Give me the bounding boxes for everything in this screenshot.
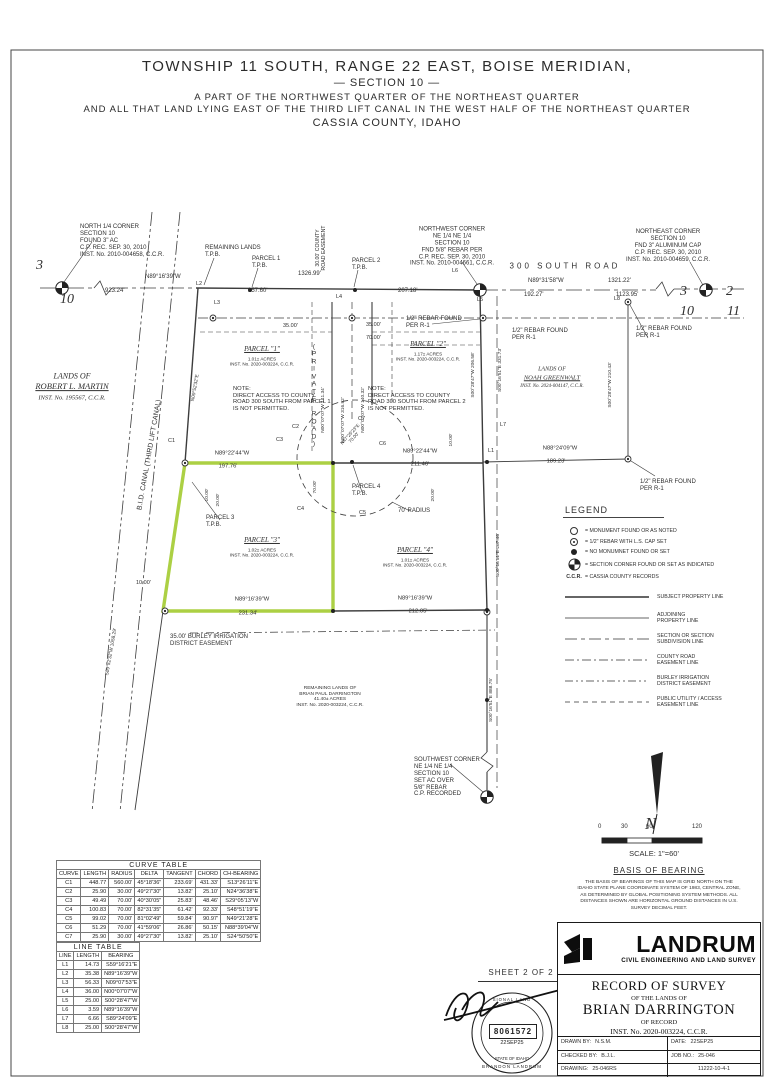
- line-label: L6: [452, 268, 458, 274]
- table-row: C651.2970.00'41°59'06"26.86'50.15'N88°39…: [57, 924, 261, 933]
- legend-line-text: PUBLIC UTILITY / ACCESS EASEMENT LINE: [657, 696, 722, 708]
- county-line-sample-icon: [563, 651, 651, 669]
- table-cell: S89°24'09"E: [102, 1015, 140, 1024]
- legend-symbol-item: = SECTION CORNER FOUND OR SET AS INDICAT…: [563, 558, 763, 571]
- rebar-note: 1/2" REBAR FOUND PER R-1: [640, 479, 696, 493]
- table-row: C349.4970.00'40°30'05"25.83'48.46'S29°05…: [57, 897, 261, 906]
- table-cell: L8: [57, 1024, 74, 1033]
- table-cell: S29°05'13"W: [221, 897, 261, 906]
- table-cell: 431.33': [195, 879, 221, 888]
- column-header: CHORD: [195, 870, 221, 879]
- section-number: 3: [36, 258, 43, 274]
- table-cell: 13.82': [164, 933, 195, 942]
- curve-label: C4: [297, 506, 304, 512]
- distance-label: 1321.22': [608, 278, 631, 285]
- table-cell: S00°28'47"W: [102, 997, 140, 1006]
- legend-symbol-item: = NO MONUMNET FOUND OR SET: [563, 549, 763, 555]
- dim-label: 10.00': [136, 580, 151, 586]
- table-cell: N24°36'38"E: [221, 888, 261, 897]
- table-cell: 92.33': [195, 906, 221, 915]
- table-cell: L7: [57, 1015, 74, 1024]
- distance-label: 197.76': [219, 464, 238, 471]
- table-cell: 70.00': [109, 906, 135, 915]
- parcel-sub: 1.17± ACRES INST. No. 2020-003224, C.C.R…: [396, 352, 460, 363]
- table-row: C225.9030.00'49°27'30"13.82'25.10'N24°36…: [57, 888, 261, 897]
- instrument-number: INST. No. 2020-003224, C.C.R.: [558, 1027, 760, 1036]
- rebar-note: 1/2" REBAR FOUND PER R-1: [636, 326, 692, 340]
- line-label: L3: [214, 300, 220, 306]
- bearing-label: S00°16'51"E 888.75': [489, 678, 495, 722]
- title-description-2: AND ALL THAT LAND LYING EAST OF THE THIR…: [0, 104, 774, 115]
- bearing-label: S00°16'51"E 331.73': [498, 348, 504, 392]
- title-township: TOWNSHIP 11 SOUTH, RANGE 22 EAST, BOISE …: [0, 58, 774, 75]
- bearing-label: N89°31'58"W: [528, 278, 564, 285]
- parcel-sub: 1.01± ACRES INST. No. 2020-003224, C.C.R…: [230, 357, 294, 368]
- line-label: L4: [336, 294, 342, 300]
- legend-line-text: SUBJECT PROPERTY LINE: [657, 594, 723, 600]
- field-label: DATE:: [671, 1039, 686, 1045]
- table-cell: N00°07'07"W: [102, 988, 140, 997]
- adjoiner-inst: INST. No. 2024-004147, C.C.R.: [520, 384, 583, 390]
- field-checked-by: CHECKED BY:B.J.L.: [558, 1051, 668, 1065]
- dim-label: 70.00': [366, 335, 381, 341]
- adjoining-line-sample-icon: [563, 609, 651, 627]
- document-title: RECORD OF SURVEY: [558, 978, 760, 994]
- legend-symbol-item: = MONUMENT FOUND OR AS NOTED: [563, 527, 763, 535]
- tpb-label: PARCEL 4 T.P.B.: [352, 484, 380, 498]
- table-row: L825.00S00°28'47"W: [57, 1024, 140, 1033]
- scale-tick: 0: [598, 824, 601, 830]
- adjoiner-label: LANDS OF: [53, 371, 90, 380]
- scale-tick: 60: [646, 824, 653, 830]
- legend-line-text: ADJOINING PROPERTY LINE: [657, 612, 698, 624]
- corner-note: SOUTHWEST CORNER NE 1/4 NE 1/4 SECTION 1…: [414, 757, 480, 798]
- legend-symbol-text: = SECTION CORNER FOUND OR SET AS INDICAT…: [585, 562, 714, 568]
- legend-symbol-text: = 1/2" REBAR WITH L.S. CAP SET: [585, 539, 667, 545]
- bearing-label: N89°16'39"W: [235, 597, 269, 604]
- rebar-cap-icon: [563, 538, 585, 546]
- table-cell: L6: [57, 1006, 74, 1015]
- column-header: LENGTH: [74, 952, 102, 961]
- table-cell: 13.82': [164, 888, 195, 897]
- table-cell: 90.97': [195, 915, 221, 924]
- parcel-sub: 1.01± ACRES INST. No. 2020-003224, C.C.R…: [383, 558, 447, 569]
- ccr: C.C.R.: [563, 574, 585, 580]
- table-cell: 48.46': [195, 897, 221, 906]
- curve-label: C2: [292, 424, 299, 430]
- owner-name: BRIAN DARRINGTON: [558, 1002, 760, 1019]
- curve-label: C5: [359, 510, 366, 516]
- field-value: 25-046RS: [592, 1066, 616, 1072]
- field-label: DRAWING:: [561, 1066, 588, 1072]
- curve-label: C7: [358, 416, 365, 422]
- column-header: BEARING: [102, 952, 140, 961]
- title-county: CASSIA COUNTY, IDAHO: [0, 117, 774, 129]
- column-header: RADIUS: [109, 870, 135, 879]
- table-cell: 70.00': [109, 915, 135, 924]
- section-number: 2: [726, 284, 733, 300]
- section-number: 10: [680, 304, 694, 320]
- title-block: LANDRUM CIVIL ENGINEERING AND LAND SURVE…: [557, 922, 761, 1076]
- rebar-note: 1/2" REBAR FOUND PER R-1: [512, 328, 568, 342]
- tpb-label: PARCEL 3 T.P.B.: [206, 515, 234, 529]
- distance-label: 231.34': [239, 611, 258, 618]
- document-title-area: RECORD OF SURVEY OF THE LANDS OF BRIAN D…: [558, 975, 760, 1037]
- adjoiner-label: LANDS OF: [538, 367, 566, 374]
- table-cell: 70.00': [109, 897, 135, 906]
- bearing-label: N88°24'09"W: [543, 446, 577, 453]
- distance-label: 923.24': [105, 288, 125, 295]
- table-cell: 82°31'35": [135, 906, 164, 915]
- legend-line-text: BURLEY IRRIGATION DISTRICT EASEMENT: [657, 675, 711, 687]
- parcel-title: PARCEL "2": [410, 340, 446, 348]
- bearing-label: N00°07'07"W 141.34': [321, 387, 327, 432]
- pue-line-sample-icon: [563, 693, 651, 711]
- title-description-1: A PART OF THE NORTHWEST QUARTER OF THE N…: [0, 92, 774, 103]
- table-row: C1448.77560.00'45°18'36"233.69'431.33'S1…: [57, 879, 261, 888]
- title-block-fields: DRAWN BY:N.S.M. DATE:22SEP25 CHECKED BY:…: [558, 1037, 760, 1077]
- no-monument-dot-icon: [563, 549, 585, 555]
- section-line-sample-icon: [563, 630, 651, 648]
- parcel-title: PARCEL "1": [244, 345, 280, 353]
- table-cell: N49°21'28"E: [221, 915, 261, 924]
- line-label: L8: [614, 296, 620, 302]
- field-drawing: DRAWING:25-046RS: [558, 1064, 668, 1077]
- bearing-label: S00°16'51"E 267.46': [496, 533, 502, 577]
- table-cell: S48°51'19"E: [221, 906, 261, 915]
- stamp-license-number: 8061572: [489, 1024, 537, 1039]
- stamp-ring-text: SIONAL LAND: [482, 997, 542, 1002]
- field-drawing-number: 11222-10-4-1: [668, 1064, 760, 1077]
- curve-label: C1: [168, 438, 175, 444]
- of-record: OF RECORD: [558, 1019, 760, 1026]
- distance-label: 212.05': [409, 609, 428, 616]
- table-cell: C6: [57, 924, 81, 933]
- dim-label: 35.00': [283, 323, 298, 329]
- table-cell: 49.49: [81, 897, 109, 906]
- table-row: L63.59N89°16'39"W: [57, 1006, 140, 1015]
- table-cell: L1: [57, 961, 74, 970]
- note: NOTE: DIRECT ACCESS TO COUNTY ROAD 300 S…: [368, 386, 466, 413]
- firm-name: LANDRUM: [636, 933, 756, 956]
- field-value: B.J.L.: [601, 1053, 615, 1059]
- parcel-sub: 1.02± ACRES INST. No. 2020-003224, C.C.R…: [230, 548, 294, 559]
- table-cell: 560.00': [109, 879, 135, 888]
- table-cell: C1: [57, 879, 81, 888]
- table-title: LINE TABLE: [57, 943, 140, 952]
- table-row: C599.0270.00'81°02'49"59.84'90.97'N49°21…: [57, 915, 261, 924]
- bearing-label: N00°07'07"W 140.32': [361, 387, 367, 432]
- table-cell: 61.42': [164, 906, 195, 915]
- line-label: L5: [477, 297, 483, 303]
- sheet-number-label: SHEET 2 OF 2: [478, 968, 564, 982]
- field-label: JOB NO.:: [671, 1053, 694, 1059]
- table-cell: 35.38: [74, 970, 102, 979]
- table-row: L235.38N89°16'39"W: [57, 970, 140, 979]
- monument-circle-icon: [563, 527, 585, 535]
- tpb-label: PARCEL 2 T.P.B.: [352, 258, 380, 272]
- table-cell: N89°16'39"W: [102, 970, 140, 979]
- table-row: L76.66S89°24'09"E: [57, 1015, 140, 1024]
- legend-symbol-text: = NO MONUMNET FOUND OR SET: [585, 549, 670, 555]
- firm-subtitle: CIVIL ENGINEERING AND LAND SURVEY: [621, 957, 756, 964]
- landrum-logo-icon: [562, 932, 598, 966]
- field-value: 25-046: [698, 1053, 715, 1059]
- line-label: L2: [196, 281, 202, 287]
- field-label: CHECKED BY:: [561, 1053, 597, 1059]
- field-value: 11222-10-4-1: [698, 1066, 730, 1072]
- basis-of-bearing-text: THE BASIS OF BEARINGS OF THIS MAP IS GRI…: [557, 880, 761, 912]
- adjoiner-inst: INST. No. 195567, C.C.R.: [38, 394, 105, 401]
- table-cell: 45°18'36": [135, 879, 164, 888]
- table-row: L114.73S59°16'21"E: [57, 961, 140, 970]
- survey-sheet: TOWNSHIP 11 SOUTH, RANGE 22 EAST, BOISE …: [0, 0, 774, 1080]
- curve-table: CURVE TABLECURVELENGTHRADIUSDELTATANGENT…: [56, 860, 261, 942]
- table-cell: S13°26'11"E: [221, 879, 261, 888]
- private-road-label: ( P R I V A T E R O A D ): [311, 344, 316, 449]
- table-cell: S24°50'50"E: [221, 933, 261, 942]
- table-cell: 41°59'06": [135, 924, 164, 933]
- curve-label: C3: [276, 437, 283, 443]
- table-cell: 14.73: [74, 961, 102, 970]
- table-cell: N09°07'53"E: [102, 979, 140, 988]
- table-cell: 49°27'30": [135, 888, 164, 897]
- table-cell: N89°16'39"W: [102, 1006, 140, 1015]
- table-cell: 50.15': [195, 924, 221, 933]
- field-job-no: JOB NO.:25-046: [668, 1051, 760, 1065]
- dim-label: 70.00': [313, 481, 319, 494]
- legend-line-text: SECTION OR SECTION SUBDIVISION LINE: [657, 633, 714, 645]
- rebar-note: 1/2" REBAR FOUND PER R-1: [406, 316, 462, 330]
- curve-label: C6: [379, 441, 386, 447]
- legend: LEGEND = MONUMENT FOUND OR AS NOTED= 1/2…: [563, 500, 763, 714]
- scale-tick: 120: [692, 824, 702, 830]
- table-cell: 25.90: [81, 888, 109, 897]
- dim-label: 35.00': [366, 322, 381, 328]
- line-table: LINE TABLELINELENGTHBEARINGL114.73S59°16…: [56, 942, 140, 1033]
- remaining-lands-note: REMAINING LANDS OF BRIAN PAUL DARRINGTON…: [296, 686, 363, 708]
- line-label: L7: [500, 422, 506, 428]
- legend-symbol-text: = CASSIA COUNTY RECORDS: [585, 574, 659, 580]
- table-cell: 100.83: [81, 906, 109, 915]
- dim-label: 20.00': [431, 489, 437, 502]
- table-cell: 56.33: [74, 979, 102, 988]
- adjoiner-name: ROBERT L. MARTIN: [35, 382, 108, 392]
- table-cell: 81°02'49": [135, 915, 164, 924]
- table-cell: S00°28'47"W: [102, 1024, 140, 1033]
- basis-of-bearing-title: BASIS OF BEARING: [560, 866, 758, 875]
- road-label: 300 SOUTH ROAD: [510, 261, 621, 270]
- radius-label: 70' RADIUS: [398, 508, 430, 515]
- scale-label: SCALE: 1"=60': [586, 849, 722, 858]
- easement-label: 30.00' COUNTY ROAD EASEMENT: [316, 226, 328, 271]
- parcel-title: PARCEL "4": [397, 546, 433, 554]
- legend-line-item: ADJOINING PROPERTY LINE: [563, 609, 763, 627]
- column-header: LINE: [57, 952, 74, 961]
- table-cell: C5: [57, 915, 81, 924]
- dim-label: 20.00': [216, 494, 222, 507]
- table-cell: 25.83': [164, 897, 195, 906]
- legend-line-item: SUBJECT PROPERTY LINE: [563, 588, 763, 606]
- table-cell: 25.10': [195, 933, 221, 942]
- legend-title: LEGEND: [563, 505, 664, 518]
- legend-line-text: COUNTY ROAD EASEMENT LINE: [657, 654, 698, 666]
- table-cell: 51.29: [81, 924, 109, 933]
- bearing-label: S00°28'47"W 210.43': [608, 362, 614, 407]
- column-header: LENGTH: [81, 870, 109, 879]
- legend-line-item: BURLEY IRRIGATION DISTRICT EASEMENT: [563, 672, 763, 690]
- table-cell: 49°27'30": [135, 933, 164, 942]
- table-cell: 25.10': [195, 888, 221, 897]
- distance-label: 157.60': [248, 288, 268, 295]
- section-corner-icon: [563, 558, 585, 571]
- dim-label: 10.00': [449, 434, 455, 447]
- table-row: L525.00S00°28'47"W: [57, 997, 140, 1006]
- table-cell: 3.59: [74, 1006, 102, 1015]
- adjoiner-name: NOAH GREENWALT: [524, 374, 580, 381]
- table-cell: 233.69': [164, 879, 195, 888]
- corner-note: NORTHWEST CORNER NE 1/4 NE 1/4 SECTION 1…: [410, 226, 494, 267]
- table-row: C4100.8370.00'82°31'35"61.42'92.33'S48°5…: [57, 906, 261, 915]
- bearing-label: S00°28'47"W 206.58': [471, 352, 477, 397]
- legend-symbol-text: = MONUMENT FOUND OR AS NOTED: [585, 528, 677, 534]
- field-value: 22SEP25: [690, 1039, 713, 1045]
- line-label: L1: [488, 448, 494, 454]
- section-number: 10: [60, 292, 74, 308]
- corner-note: NORTHEAST CORNER SECTION 10 FND 3" ALUMI…: [626, 229, 710, 263]
- table-cell: 40°30'05": [135, 897, 164, 906]
- bearing-label: N89°22'44"W: [403, 449, 437, 456]
- dim-label: 10.00': [205, 489, 211, 502]
- table-cell: 25.00: [74, 997, 102, 1006]
- table-cell: 30.00': [109, 933, 135, 942]
- column-header: CH-BEARING: [221, 870, 261, 879]
- table-cell: C2: [57, 888, 81, 897]
- column-header: CURVE: [57, 870, 81, 879]
- column-header: TANGENT: [164, 870, 195, 879]
- table-cell: 59.84': [164, 915, 195, 924]
- bearing-label: N89°16'39"W: [145, 274, 181, 281]
- easement-label: 35.00' BURLEY IRRIGATION DISTRICT EASEME…: [170, 634, 248, 648]
- legend-line-item: COUNTY ROAD EASEMENT LINE: [563, 651, 763, 669]
- bearing-label: N89°22'44"W: [215, 451, 249, 458]
- stamp-date: 22SEP25: [487, 1040, 537, 1046]
- distance-label: 207.18': [398, 288, 418, 295]
- table-title: CURVE TABLE: [57, 861, 261, 870]
- table-cell: L2: [57, 970, 74, 979]
- table-cell: L4: [57, 988, 74, 997]
- tpb-label: PARCEL 1 T.P.B.: [252, 256, 280, 270]
- table-row: L356.33N09°07'53"E: [57, 979, 140, 988]
- table-cell: 26.86': [164, 924, 195, 933]
- parcel-title: PARCEL "3": [244, 536, 280, 544]
- title-section: — SECTION 10 —: [0, 77, 774, 89]
- field-label: DRAWN BY:: [561, 1039, 591, 1045]
- table-cell: 448.77: [81, 879, 109, 888]
- distance-label: 192.27': [524, 292, 544, 299]
- legend-symbol-item: = 1/2" REBAR WITH L.S. CAP SET: [563, 538, 763, 546]
- table-cell: 25.00: [74, 1024, 102, 1033]
- distance-label: 211.46': [411, 462, 429, 469]
- table-cell: L5: [57, 997, 74, 1006]
- table-cell: 99.02: [81, 915, 109, 924]
- legend-line-item: SECTION OR SECTION SUBDIVISION LINE: [563, 630, 763, 648]
- legend-line-item: PUBLIC UTILITY / ACCESS EASEMENT LINE: [563, 693, 763, 711]
- table-cell: 6.66: [74, 1015, 102, 1024]
- table-cell: 25.90: [81, 933, 109, 942]
- field-value: N.S.M.: [595, 1039, 611, 1045]
- corner-note: NORTH 1/4 CORNER SECTION 10 FOUND 3" AC …: [80, 224, 164, 258]
- table-cell: N88°39'04"W: [221, 924, 261, 933]
- stamp-state: STATE OF IDAHO: [482, 1056, 542, 1061]
- stamp-holder-name: BRANDON LANDRUM: [478, 1064, 546, 1069]
- field-date: DATE:22SEP25: [668, 1037, 760, 1051]
- table-cell: C3: [57, 897, 81, 906]
- table-row: L436.00N00°07'07"W: [57, 988, 140, 997]
- table-cell: 70.00': [109, 924, 135, 933]
- table-cell: 36.00: [74, 988, 102, 997]
- burley-line-sample-icon: [563, 672, 651, 690]
- column-header: DELTA: [135, 870, 164, 879]
- section-number: 11: [727, 304, 740, 320]
- of-the-lands-of: OF THE LANDS OF: [558, 995, 760, 1002]
- field-drawn-by: DRAWN BY:N.S.M.: [558, 1037, 668, 1051]
- table-cell: 30.00': [109, 888, 135, 897]
- table-cell: C4: [57, 906, 81, 915]
- table-cell: L3: [57, 979, 74, 988]
- legend-symbol-item: C.C.R.= CASSIA COUNTY RECORDS: [563, 574, 763, 580]
- table-row: C725.9030.00'49°27'30"13.82'25.10'S24°50…: [57, 933, 261, 942]
- bearing-label: N89°16'39"W: [398, 596, 432, 603]
- firm-banner: LANDRUM CIVIL ENGINEERING AND LAND SURVE…: [558, 923, 760, 975]
- table-cell: C7: [57, 933, 81, 942]
- scale-tick: 30: [621, 824, 628, 830]
- distance-label: 1326.99': [298, 271, 321, 278]
- section-number: 3: [680, 284, 687, 300]
- subject-line-sample-icon: [563, 588, 651, 606]
- table-cell: S59°16'21"E: [102, 961, 140, 970]
- distance-label: 189.23': [547, 459, 566, 466]
